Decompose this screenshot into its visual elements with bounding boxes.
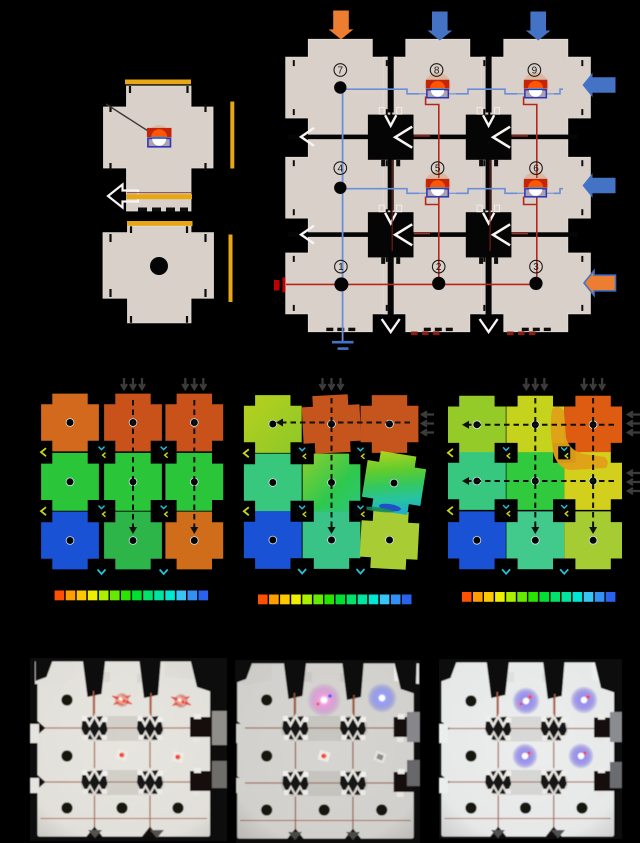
- svg-text:7: 7: [338, 66, 344, 77]
- svg-text:2: 2: [436, 262, 442, 273]
- svg-text:1: 1: [338, 262, 344, 273]
- svg-text:6: 6: [533, 164, 539, 175]
- svg-text:8: 8: [434, 66, 440, 77]
- svg-text:3: 3: [533, 262, 539, 273]
- svg-text:9: 9: [532, 66, 538, 77]
- svg-text:5: 5: [435, 164, 441, 175]
- svg-text:4: 4: [338, 164, 344, 175]
